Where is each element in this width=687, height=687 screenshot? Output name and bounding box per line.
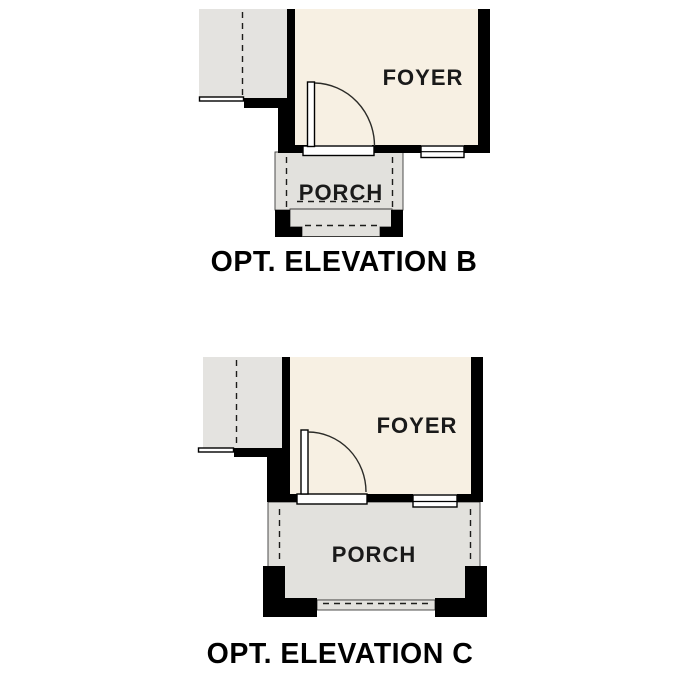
wall — [287, 9, 295, 108]
wall — [471, 357, 483, 502]
wall — [366, 494, 413, 502]
caption-elevation-c: OPT. ELEVATION C — [207, 638, 474, 670]
wall — [267, 457, 290, 502]
wall — [478, 9, 490, 153]
wall — [244, 98, 295, 108]
elevation-c-plan: FOYER PORCH OPT. ELEVATION C — [199, 357, 488, 670]
adjacent-room-area — [203, 357, 282, 448]
porch-step — [290, 209, 392, 237]
wall — [372, 145, 421, 153]
wall-opening-symbol — [199, 448, 234, 452]
elevation-b-plan: FOYER PORCH OPT. ELEVATION B — [199, 9, 490, 278]
door-leaf — [308, 82, 315, 147]
porch-step — [317, 600, 435, 610]
door-leaf — [301, 430, 308, 494]
door-threshold — [297, 494, 367, 504]
wall-opening-symbol — [200, 97, 244, 101]
wall — [282, 357, 290, 448]
floorplan-canvas: FOYER PORCH OPT. ELEVATION B — [0, 0, 687, 687]
foyer-room-label: FOYER — [383, 65, 464, 90]
floorplan-drawing: FOYER PORCH OPT. ELEVATION B — [0, 0, 687, 687]
caption-elevation-b: OPT. ELEVATION B — [211, 246, 478, 278]
wall — [234, 448, 290, 457]
wall — [278, 108, 295, 153]
foyer-room-label: FOYER — [377, 413, 458, 438]
door-threshold — [303, 146, 374, 156]
porch-room-label: PORCH — [332, 542, 416, 567]
adjacent-room-area — [199, 9, 287, 99]
porch-room-label: PORCH — [299, 180, 383, 205]
